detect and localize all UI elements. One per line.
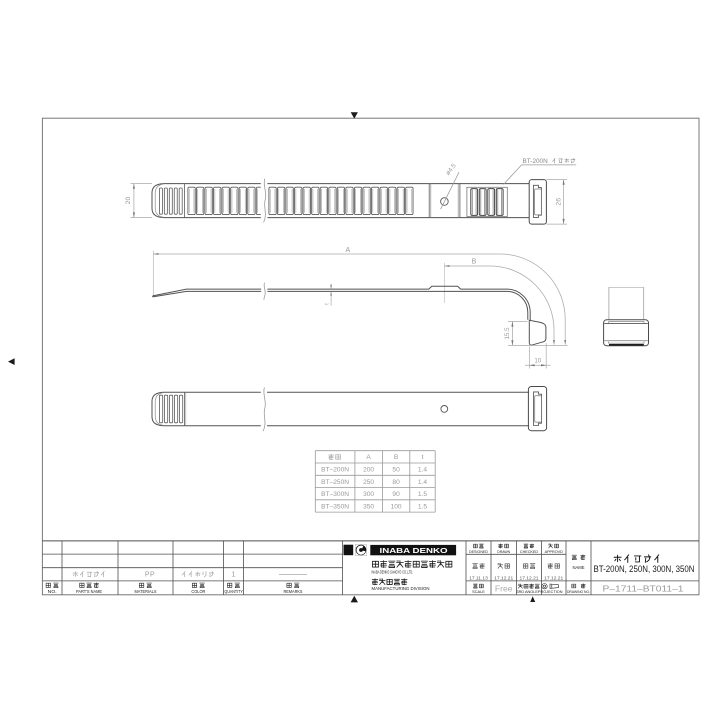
svg-text:20: 20 (125, 197, 132, 205)
svg-text:17.12.21: 17.12.21 (494, 575, 513, 581)
svg-text:SCALE: SCALE (472, 589, 485, 594)
svg-text:200: 200 (363, 466, 374, 473)
svg-text:BT–350N: BT–350N (321, 503, 349, 510)
svg-text:17.12.21: 17.12.21 (519, 575, 538, 581)
svg-text:DRAWN: DRAWN (497, 549, 510, 554)
svg-text:BT-200N, 250N, 300N, 350N: BT-200N, 250N, 300N, 350N (594, 564, 695, 574)
svg-text:COLOR: COLOR (191, 589, 205, 594)
svg-text:BT-200N: BT-200N (523, 158, 549, 165)
svg-text:90: 90 (392, 491, 400, 498)
svg-text:DRAWING NO.: DRAWING NO. (567, 590, 590, 594)
svg-text:26: 26 (556, 198, 563, 206)
svg-text:1.5: 1.5 (418, 503, 427, 510)
svg-text:17.11.13: 17.11.13 (469, 575, 488, 581)
svg-text:PP: PP (145, 572, 155, 579)
svg-text:100: 100 (391, 503, 402, 510)
svg-text:MATERIALS: MATERIALS (135, 589, 157, 594)
svg-text:BT–300N: BT–300N (321, 491, 349, 498)
svg-text:350: 350 (363, 503, 374, 510)
svg-text:BT–250N: BT–250N (321, 479, 349, 486)
svg-text:QUANTITY: QUANTITY (224, 589, 243, 594)
svg-text:B: B (472, 259, 477, 266)
svg-text:1: 1 (232, 572, 236, 579)
svg-text:1.4: 1.4 (418, 479, 427, 486)
svg-text:CHECKED: CHECKED (520, 549, 538, 554)
svg-text:APPROVD: APPROVD (545, 549, 563, 554)
svg-text:1.5: 1.5 (418, 491, 427, 498)
svg-text:3RD ANGLEPROJECTION: 3RD ANGLEPROJECTION (517, 590, 563, 594)
svg-text:INABA DENKO: INABA DENKO (380, 546, 448, 555)
svg-text:10: 10 (534, 358, 541, 365)
svg-text:MANUFACTURING DIVISION: MANUFACTURING DIVISION (372, 586, 430, 591)
svg-text:BT–200N: BT–200N (321, 466, 349, 473)
svg-text:17.12.21: 17.12.21 (544, 575, 563, 581)
svg-text:250: 250 (363, 479, 374, 486)
svg-text:Free: Free (495, 583, 513, 593)
svg-text:B: B (394, 454, 399, 461)
svg-text:NAME: NAME (572, 565, 584, 570)
svg-text:1.4: 1.4 (418, 466, 427, 473)
svg-text:15.5: 15.5 (504, 327, 511, 340)
svg-text:t: t (422, 454, 424, 461)
svg-text:INABA DENKO SANGYO CO.,LTD.: INABA DENKO SANGYO CO.,LTD. (372, 570, 414, 575)
svg-text:80: 80 (392, 479, 400, 486)
svg-text:300: 300 (363, 491, 374, 498)
svg-text:P–1711–BT011–1: P–1711–BT011–1 (603, 583, 684, 593)
svg-text:50: 50 (392, 466, 400, 473)
svg-text:DESIGNED: DESIGNED (469, 549, 488, 554)
svg-text:A: A (366, 454, 371, 461)
svg-text:PART'S NAME: PART'S NAME (76, 589, 102, 594)
svg-text:NO.: NO. (48, 589, 57, 594)
svg-text:A: A (345, 247, 350, 254)
svg-text:REMARKS: REMARKS (284, 589, 303, 594)
